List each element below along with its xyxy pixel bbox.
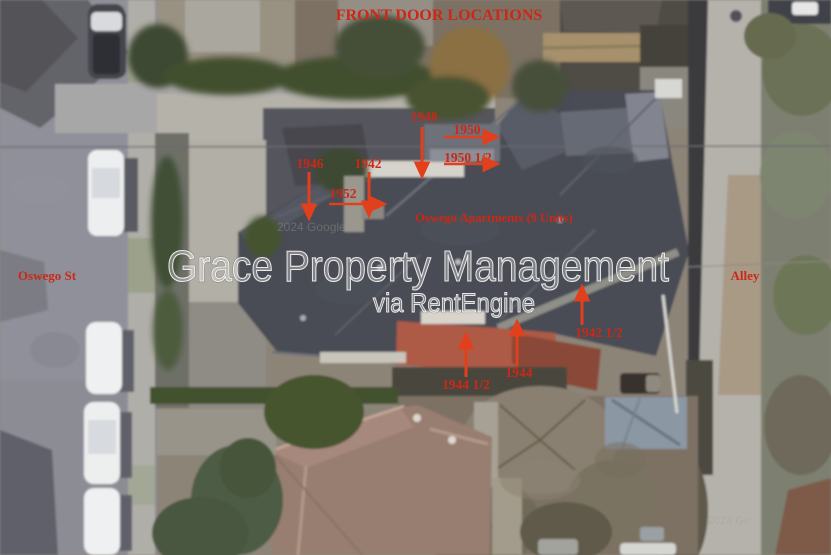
svg-text:Grace Property Management: Grace Property Management	[167, 242, 669, 291]
svg-text:1950: 1950	[454, 122, 481, 137]
svg-text:1944: 1944	[506, 365, 533, 380]
svg-text:Oswego Apartments (9 Units): Oswego Apartments (9 Units)	[415, 211, 572, 225]
svg-text:Oswego St: Oswego St	[18, 268, 77, 283]
svg-text:1942 1/2: 1942 1/2	[575, 325, 623, 340]
svg-text:1952: 1952	[330, 186, 357, 201]
svg-text:1948: 1948	[411, 109, 438, 124]
svg-text:1946: 1946	[297, 156, 324, 171]
svg-text:2024 Go: 2024 Go	[708, 515, 750, 527]
svg-text:2024 Google: 2024 Google	[277, 220, 346, 234]
svg-text:via RentEngine: via RentEngine	[373, 288, 535, 318]
svg-text:FRONT DOOR LOCATIONS: FRONT DOOR LOCATIONS	[336, 7, 543, 24]
svg-text:1944 1/2: 1944 1/2	[442, 377, 490, 392]
svg-text:Alley: Alley	[731, 268, 760, 283]
svg-text:1942: 1942	[355, 156, 382, 171]
